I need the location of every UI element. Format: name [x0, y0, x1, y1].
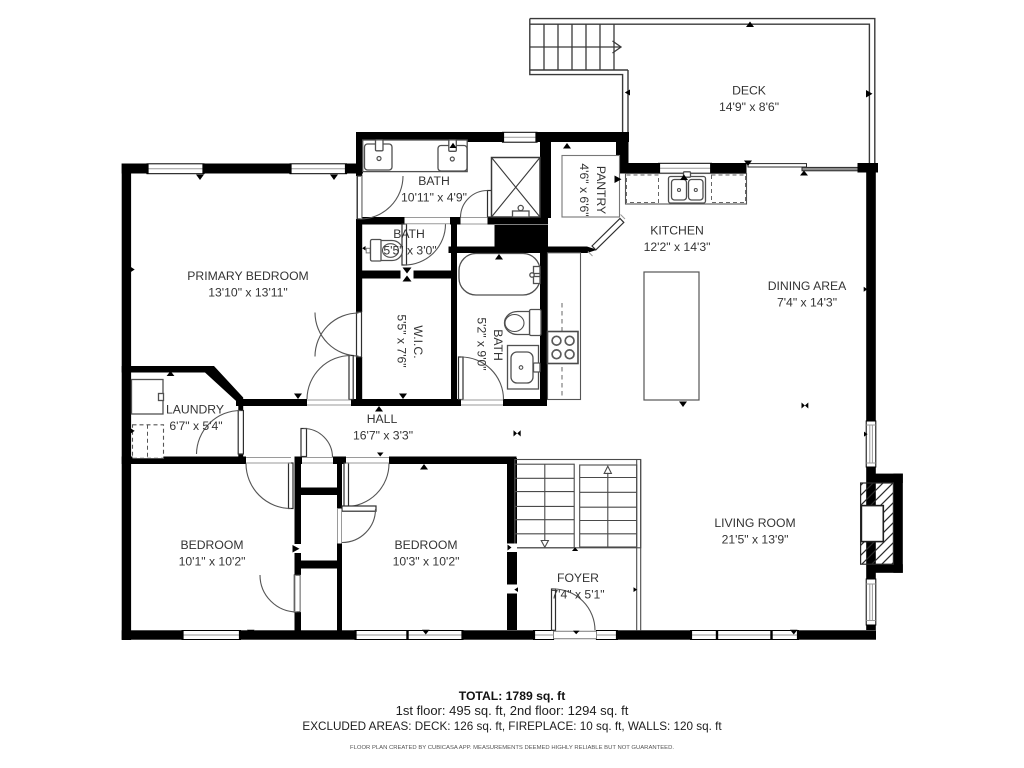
svg-text:10'11" x 4'9": 10'11" x 4'9" [401, 190, 467, 204]
svg-text:5'5" x 3'0": 5'5" x 3'0" [383, 243, 436, 257]
svg-text:7'4" x 5'1": 7'4" x 5'1" [551, 587, 604, 601]
svg-text:KITCHEN: KITCHEN [650, 224, 704, 238]
svg-text:BEDROOM: BEDROOM [395, 538, 458, 552]
svg-text:10'1" x 10'2": 10'1" x 10'2" [179, 554, 246, 568]
svg-text:10'3" x 10'2": 10'3" x 10'2" [393, 554, 460, 568]
svg-text:BATH: BATH [491, 329, 505, 361]
svg-text:12'2" x 14'3": 12'2" x 14'3" [644, 240, 711, 254]
svg-text:BATH: BATH [393, 227, 425, 241]
svg-text:BEDROOM: BEDROOM [181, 538, 244, 552]
svg-text:FLOOR PLAN CREATED BY CUBICASA: FLOOR PLAN CREATED BY CUBICASA APP. MEAS… [350, 745, 674, 751]
svg-text:4'6" x 6'6": 4'6" x 6'6" [577, 163, 591, 216]
svg-text:5'2" x 9'0": 5'2" x 9'0" [475, 317, 489, 370]
svg-text:HALL: HALL [367, 412, 398, 426]
svg-text:16'7" x 3'3": 16'7" x 3'3" [353, 428, 413, 442]
svg-text:TOTAL: 1789 sq. ft: TOTAL: 1789 sq. ft [459, 689, 566, 703]
svg-text:EXCLUDED AREAS: DECK: 126 sq.: EXCLUDED AREAS: DECK: 126 sq. ft, FIREPL… [302, 720, 722, 733]
svg-text:LIVING ROOM: LIVING ROOM [714, 516, 795, 530]
svg-text:PANTRY: PANTRY [594, 166, 608, 214]
svg-text:5'5" x 7'6": 5'5" x 7'6" [395, 314, 409, 367]
svg-text:LAUNDRY: LAUNDRY [166, 403, 224, 417]
svg-text:BATH: BATH [418, 174, 450, 188]
svg-text:14'9" x 8'6": 14'9" x 8'6" [719, 100, 779, 114]
svg-text:21'5" x 13'9": 21'5" x 13'9" [722, 532, 789, 546]
svg-text:DINING AREA: DINING AREA [768, 279, 847, 293]
svg-text:7'4" x 14'3": 7'4" x 14'3" [777, 295, 837, 309]
svg-text:13'10" x 13'11": 13'10" x 13'11" [208, 285, 288, 299]
svg-text:DECK: DECK [732, 84, 766, 98]
svg-text:FOYER: FOYER [557, 571, 599, 585]
svg-text:6'7" x 5'4": 6'7" x 5'4" [169, 419, 222, 433]
svg-text:PRIMARY BEDROOM: PRIMARY BEDROOM [187, 269, 308, 283]
svg-text:W.I.C.: W.I.C. [411, 325, 425, 358]
svg-text:1st floor: 495 sq. ft, 2nd flo: 1st floor: 495 sq. ft, 2nd floor: 1294 s… [396, 703, 629, 718]
